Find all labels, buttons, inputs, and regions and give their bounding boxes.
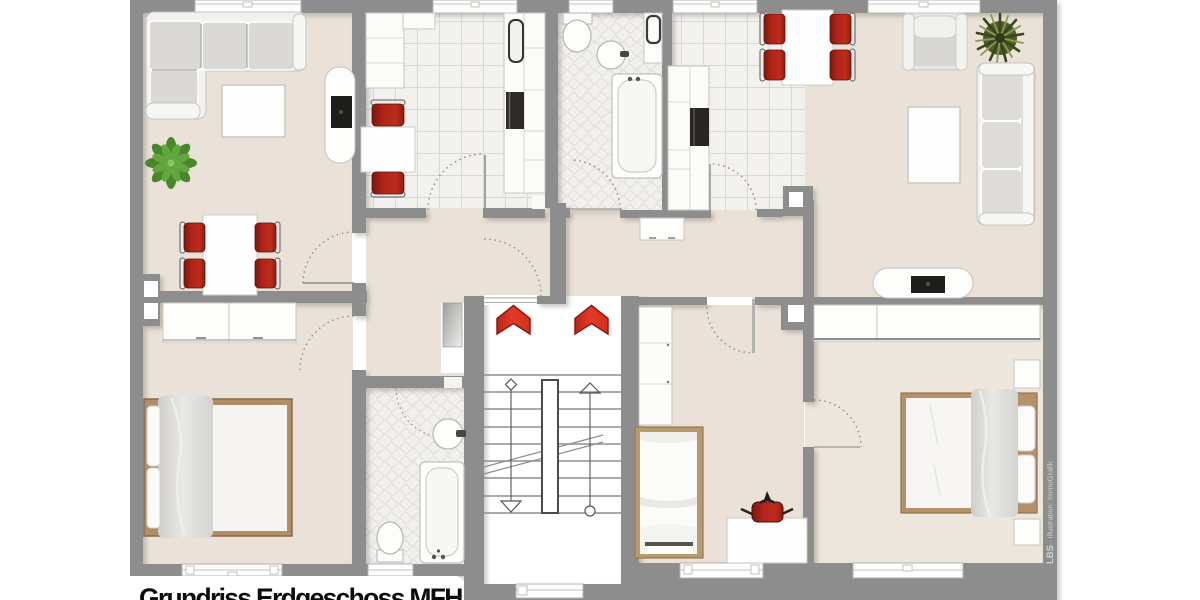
svg-text:LBS· Illustration: ImmoGrafik: LBS· Illustration: ImmoGrafik: [1045, 461, 1056, 564]
svg-text:Grundriss Erdgeschoss MFH: Grundriss Erdgeschoss MFH: [139, 583, 462, 600]
